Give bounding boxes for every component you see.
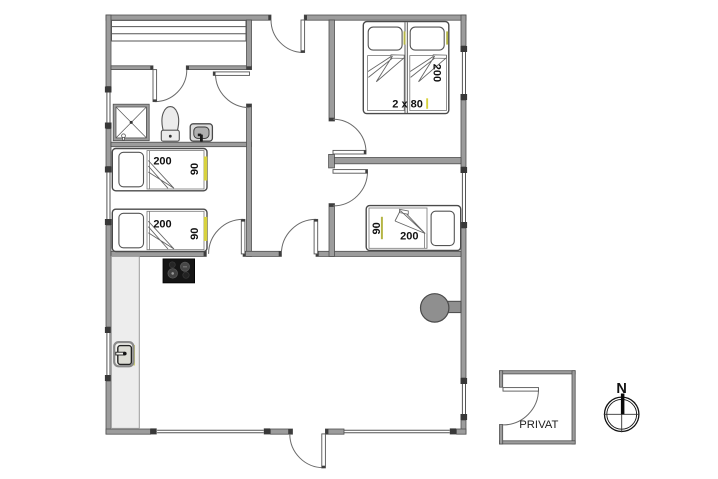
svg-text:PRIVAT: PRIVAT: [519, 419, 558, 431]
svg-text:2 x 80: 2 x 80: [392, 98, 423, 110]
svg-text:200: 200: [400, 230, 418, 242]
svg-text:200: 200: [430, 64, 442, 82]
svg-text:90: 90: [371, 222, 383, 234]
svg-text:90: 90: [189, 163, 201, 175]
svg-text:90: 90: [189, 228, 201, 240]
svg-text:200: 200: [153, 155, 171, 167]
svg-text:200: 200: [153, 219, 171, 231]
